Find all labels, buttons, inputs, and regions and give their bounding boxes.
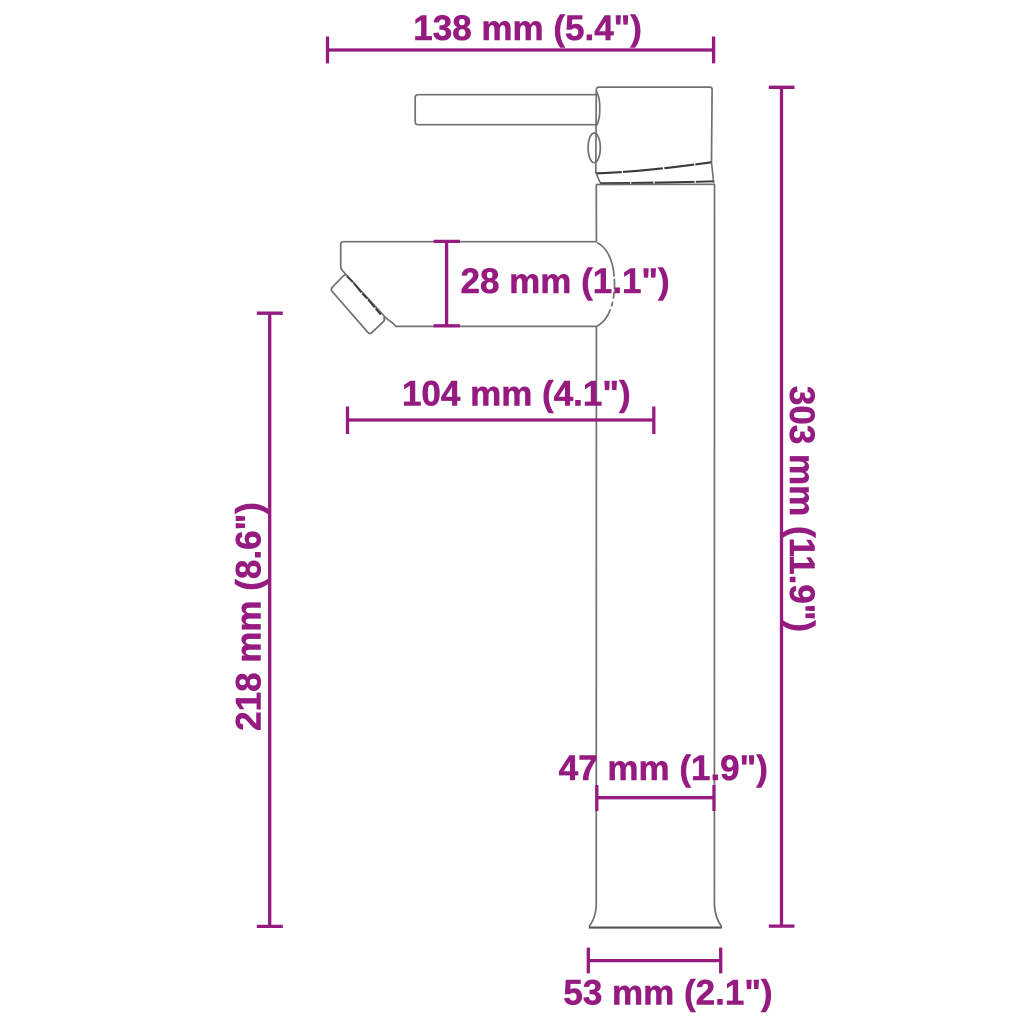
- svg-text:47 mm (1.9"): 47 mm (1.9"): [559, 749, 768, 788]
- svg-text:303 mm (11.9"): 303 mm (11.9"): [782, 386, 821, 632]
- svg-text:28 mm (1.1"): 28 mm (1.1"): [461, 262, 670, 301]
- svg-text:218 mm (8.6"): 218 mm (8.6"): [230, 502, 269, 731]
- svg-text:104 mm (4.1"): 104 mm (4.1"): [402, 375, 631, 414]
- svg-text:138 mm (5.4"): 138 mm (5.4"): [413, 9, 642, 48]
- svg-text:53 mm (2.1"): 53 mm (2.1"): [563, 974, 772, 1013]
